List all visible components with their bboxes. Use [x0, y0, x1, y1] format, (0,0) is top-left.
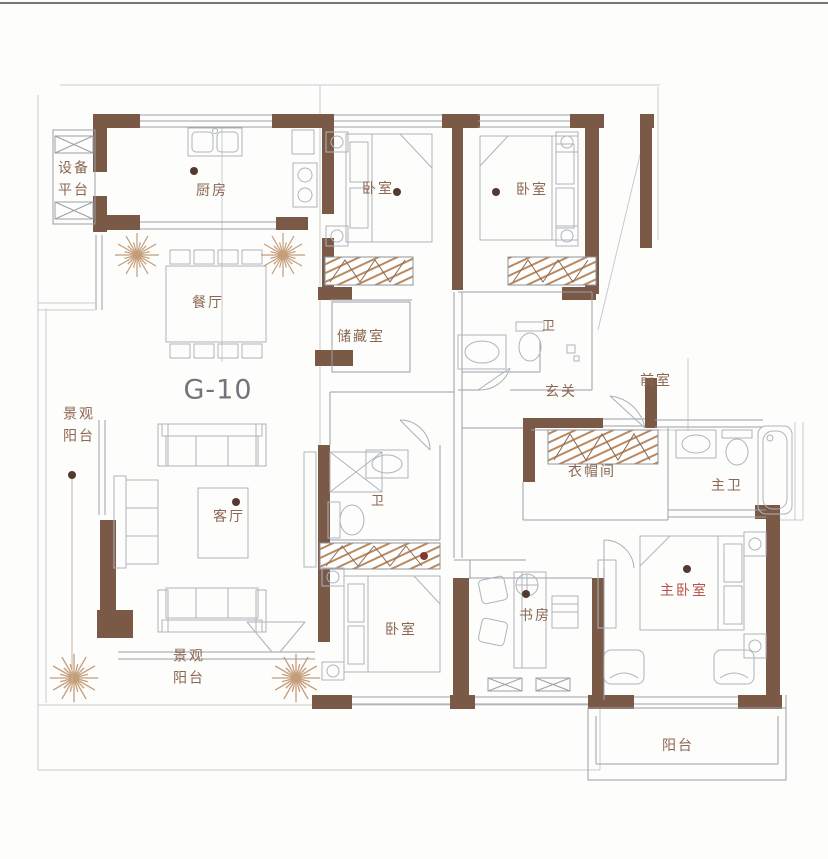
room-label-kitchen: 厨房	[196, 181, 228, 203]
room-label-bath-upper: 卫	[542, 317, 556, 337]
room-label-bedroom-top-right: 卧室	[516, 180, 548, 202]
room-label-cloakroom: 衣帽间	[568, 462, 616, 484]
room-label-bedroom-top-left: 卧室	[362, 179, 394, 201]
room-label-bath-middle: 卫	[371, 492, 385, 512]
room-label-dining: 餐厅	[192, 293, 224, 315]
wardrobe-hatch	[320, 257, 658, 569]
room-label-entry-hall: 玄关	[545, 382, 577, 404]
bedroom3-furniture	[322, 568, 440, 680]
doors	[247, 368, 645, 652]
floor-plan-drawing	[0, 0, 828, 859]
room-label-balcony: 阳台	[662, 736, 694, 758]
room-label-master-bath: 主卫	[711, 476, 743, 498]
room-label-study: 书房	[519, 606, 551, 628]
bath-upper-fixtures	[458, 322, 579, 369]
floor-vent-boxes	[488, 678, 570, 691]
room-label-front-room: 前室	[640, 371, 672, 393]
room-label-storage: 储藏室	[337, 327, 385, 349]
bath-middle-fixtures	[328, 450, 408, 538]
room-label-equipment-platform: 设备 平台	[58, 158, 90, 201]
room-label-landscape-balcony-bottom: 景观 阳台	[173, 646, 205, 689]
room-label-bedroom-bottom: 卧室	[385, 620, 417, 642]
master-bedroom-furniture	[598, 532, 766, 684]
room-label-master-bedroom: 主卧室	[660, 581, 708, 603]
room-label-landscape-balcony-left: 景观 阳台	[63, 404, 95, 447]
unit-label: G-10	[183, 375, 252, 406]
master-bath-fixtures	[676, 426, 792, 514]
room-label-living: 客厅	[213, 507, 245, 529]
floor-plan: 设备 平台 厨房 卧室 卧室 餐厅 储藏室 卫 玄关 前室 G-10 景观 阳台…	[0, 0, 828, 859]
